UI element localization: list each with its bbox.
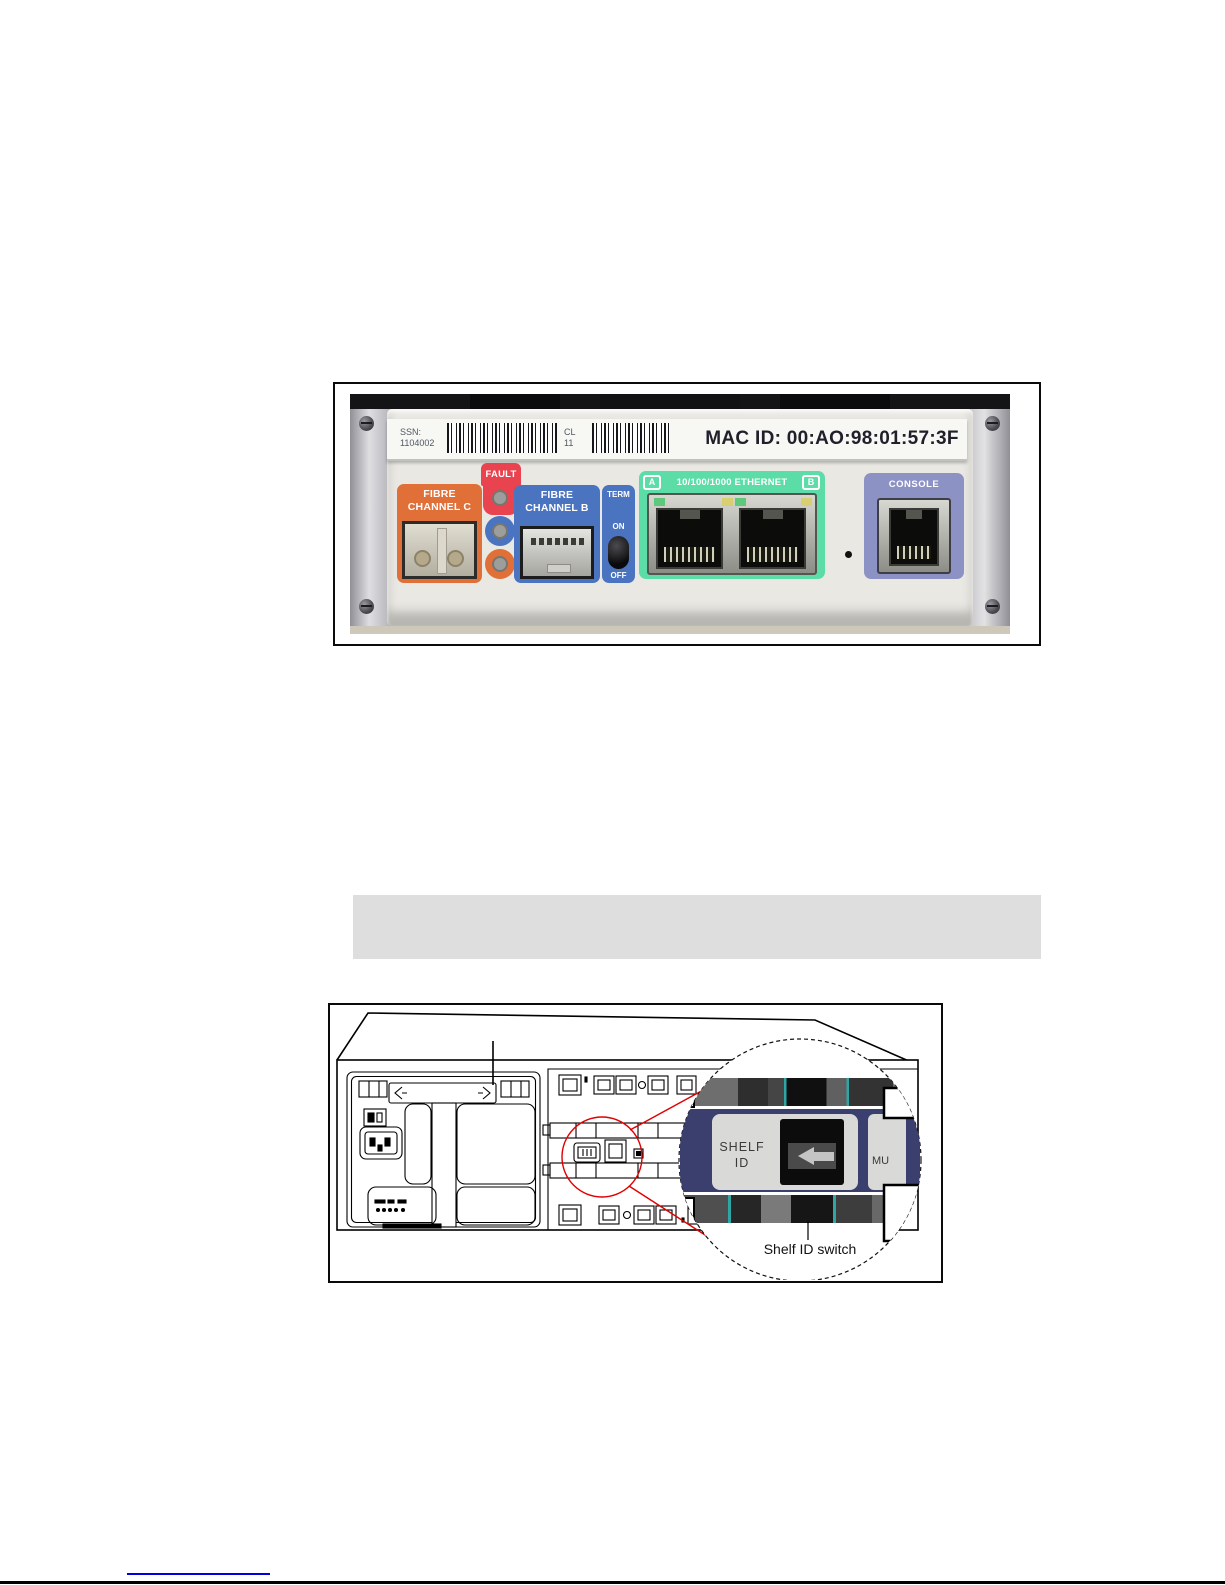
fault-label: FAULT bbox=[481, 463, 521, 486]
shelf-id-switch-caption: Shelf ID switch bbox=[764, 1241, 857, 1257]
ethernet-port-b-badge: B bbox=[802, 475, 820, 490]
screw-icon bbox=[359, 599, 374, 614]
ethernet-port-a[interactable] bbox=[656, 508, 723, 569]
fibre-channel-c-port[interactable] bbox=[402, 521, 477, 579]
cl-label: CL 11 bbox=[564, 427, 576, 449]
term-switch-panel: TERM ON OFF bbox=[602, 485, 635, 583]
shelf-drawing: SHELF ID MU Shelf ID switch bbox=[330, 1005, 940, 1280]
status-led bbox=[492, 523, 508, 539]
ssn-label: SSN: 1104002 bbox=[400, 427, 434, 449]
console-label: CONSOLE bbox=[864, 479, 964, 490]
figure-shelf-id-drawing: SHELF ID MU Shelf ID switch bbox=[328, 1003, 943, 1283]
page-bottom-border bbox=[0, 1581, 1225, 1584]
fibre-channel-b-port[interactable] bbox=[520, 526, 594, 579]
link-led-green bbox=[735, 498, 746, 506]
ethernet-label: 10/100/1000 ETHERNET bbox=[663, 477, 801, 488]
figure-controller-module: SSN: 1104002 CL 11 MAC ID: 00:AO:98:01:5… bbox=[333, 382, 1041, 646]
footer-link-underline[interactable] bbox=[127, 1573, 270, 1575]
module-rear-photo: SSN: 1104002 CL 11 MAC ID: 00:AO:98:01:5… bbox=[350, 394, 1010, 634]
shelf-id-label-line2: ID bbox=[735, 1156, 750, 1170]
mac-id-text: MAC ID: 00:AO:98:01:57:3F bbox=[702, 428, 962, 450]
shelf-id-label-line1: SHELF bbox=[719, 1140, 764, 1154]
screw-icon bbox=[985, 416, 1000, 431]
ethernet-port-a-badge: A bbox=[643, 475, 661, 490]
manual-page: SSN: 1104002 CL 11 MAC ID: 00:AO:98:01:5… bbox=[0, 0, 1225, 1585]
status-led bbox=[492, 556, 508, 572]
activity-led-amber bbox=[801, 498, 812, 506]
ethernet-port-block bbox=[647, 493, 817, 575]
link-led-green bbox=[654, 498, 665, 506]
fibre-channel-c-panel: FIBRE CHANNEL C bbox=[397, 484, 482, 583]
fibre-channel-b-label: FIBRE CHANNEL B bbox=[514, 485, 600, 515]
id-label-strip: SSN: 1104002 CL 11 MAC ID: 00:AO:98:01:5… bbox=[387, 419, 967, 461]
right-mounting-flange bbox=[967, 409, 1010, 626]
term-on-label: ON bbox=[602, 522, 635, 531]
barcode bbox=[447, 423, 557, 453]
term-toggle-switch[interactable] bbox=[608, 536, 629, 569]
ethernet-panel: A 10/100/1000 ETHERNET B bbox=[639, 471, 825, 579]
reset-pinhole[interactable] bbox=[845, 551, 852, 558]
activity-led-amber bbox=[722, 498, 733, 506]
ethernet-port-b[interactable] bbox=[739, 508, 806, 569]
fibre-channel-c-label: FIBRE CHANNEL C bbox=[397, 484, 482, 514]
barcode bbox=[592, 423, 670, 453]
term-off-label: OFF bbox=[602, 571, 635, 580]
console-port[interactable] bbox=[889, 508, 939, 566]
term-label: TERM bbox=[602, 490, 635, 499]
mute-partial-label: MU bbox=[872, 1155, 889, 1167]
console-panel: CONSOLE bbox=[864, 473, 964, 579]
console-port-block bbox=[877, 498, 951, 574]
fault-led bbox=[492, 490, 508, 506]
screw-icon bbox=[359, 416, 374, 431]
magnified-view: SHELF ID MU bbox=[676, 1078, 920, 1241]
fibre-channel-b-panel: FIBRE CHANNEL B bbox=[514, 485, 600, 583]
note-box bbox=[353, 895, 1041, 959]
screw-icon bbox=[985, 599, 1000, 614]
